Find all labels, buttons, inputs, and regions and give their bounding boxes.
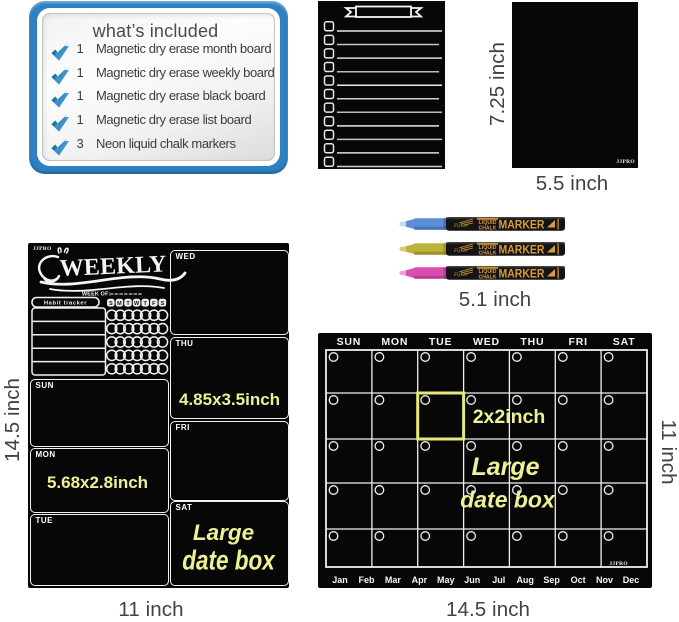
- svg-text:2x2inch: 2x2inch: [473, 406, 546, 428]
- svg-text:Dec: Dec: [623, 575, 640, 585]
- svg-text:TUE: TUE: [429, 336, 452, 348]
- svg-text:SAT: SAT: [613, 336, 636, 348]
- svg-text:CHALK: CHALK: [479, 250, 497, 256]
- svg-text:WED: WED: [473, 336, 500, 348]
- svg-text:FRI: FRI: [569, 336, 588, 348]
- svg-text:Nov: Nov: [596, 575, 613, 585]
- svg-text:MON: MON: [381, 336, 408, 348]
- svg-text:THU: THU: [520, 336, 544, 348]
- svg-text:Habit tracker: Habit tracker: [44, 301, 87, 307]
- svg-text:Mar: Mar: [385, 575, 402, 585]
- svg-text:Sep: Sep: [543, 575, 560, 585]
- svg-text:MARKER: MARKER: [499, 218, 545, 232]
- svg-text:M: M: [117, 301, 122, 307]
- svg-text:Jun: Jun: [464, 575, 480, 585]
- svg-text:S: S: [109, 301, 113, 307]
- svg-text:SUN: SUN: [337, 336, 362, 348]
- svg-text:WEEK OF:: WEEK OF:: [82, 291, 111, 297]
- svg-text:S: S: [161, 301, 165, 307]
- svg-text:date box: date box: [460, 487, 556, 513]
- svg-text:Apr: Apr: [412, 575, 428, 585]
- svg-text:CHALK: CHALK: [479, 274, 497, 280]
- svg-text:W: W: [134, 301, 140, 307]
- svg-text:Aug: Aug: [516, 575, 534, 585]
- svg-text:May: May: [437, 575, 455, 585]
- svg-text:Jul: Jul: [492, 575, 505, 585]
- svg-text:Large: Large: [471, 453, 539, 481]
- svg-text:MARKER: MARKER: [499, 242, 545, 256]
- svg-text:Oct: Oct: [571, 575, 586, 585]
- svg-text:CHALK: CHALK: [479, 225, 497, 231]
- svg-text:Jan: Jan: [332, 575, 348, 585]
- svg-text:Feb: Feb: [358, 575, 375, 585]
- svg-text:MARKER: MARKER: [499, 267, 545, 281]
